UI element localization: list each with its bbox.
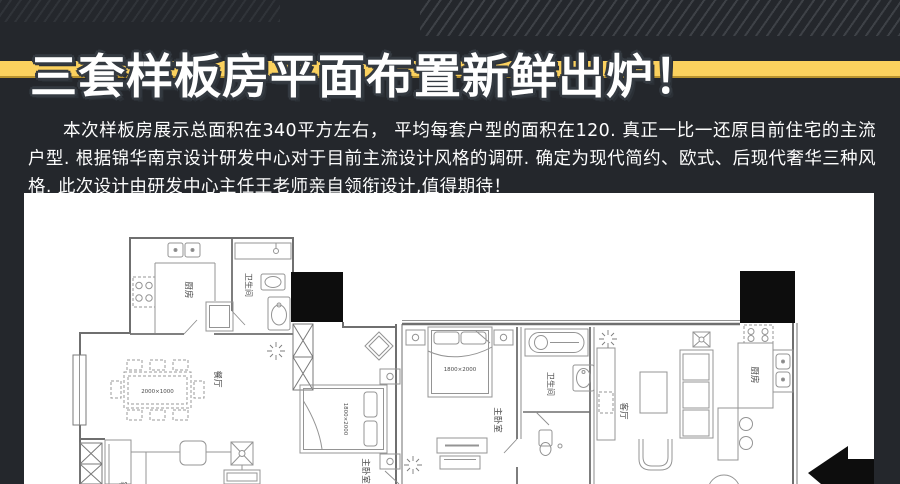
bar-counter [718,408,738,460]
armchair-icon [639,439,672,470]
tv-cabinet-icon-1 [224,470,260,484]
tv-cabinet-icon-3 [597,348,615,440]
article-page: { "colors": { "background": "#24272c", "… [0,0,900,484]
washbasin-icon [261,274,285,290]
ceiling-fan-icon-2 [693,332,710,347]
room-label-bathroom-2: 卫生间 [546,372,556,396]
bed-dimension-2: 1800×2000 [444,367,477,373]
corner-chair-icon [365,332,393,360]
structural-column-left [291,272,343,322]
kitchen-1 [133,243,233,333]
side-table-icon [180,441,206,465]
toilet-icon-2 [539,430,562,456]
room-label-kitchen-1: 厨房 [183,281,194,298]
fridge-icon [206,302,233,331]
floor-plan-drawing: 厨房 卫生间 2000×1000 餐厅 [24,193,874,484]
stove-burners [136,282,152,301]
elevator-shaft-icon [293,324,313,390]
stove-icon [133,277,155,307]
room-label-bathroom-1: 卫生间 [244,273,254,297]
tv-cabinet-icon-2 [437,438,487,453]
bed-icon-2 [428,327,492,397]
room-label-living-2: 客厅 [618,402,629,420]
bedroom-2 [406,327,513,469]
ceiling-lamp-icon-3 [404,456,422,474]
stove-burners-2 [748,329,768,342]
room-label-dining: 餐厅 [212,370,222,388]
bed-dimension-1: 1800×2000 [342,403,348,436]
kitchen-sink-icon-2 [773,350,793,392]
bathroom-1 [235,243,291,330]
dresser-icon [440,456,480,469]
room-label-master-1: 主卧室 [360,458,371,484]
header-hatch-texture-right [420,0,900,36]
intro-paragraph: 本次样板房展示总面积在340平方左右， 平均每套户型的面积在120. 真正一比一… [28,117,876,201]
coffee-table-icon [640,372,667,413]
floorplan-panel: 厨房 卫生间 2000×1000 餐厅 [24,193,874,484]
header-hatch-texture-left [0,0,280,22]
kitchen-sink-icon [168,243,200,257]
page-title: 三套样板房平面布置新鲜出炉！ [30,47,702,108]
bedroom-1 [300,332,400,469]
round-table-icon [708,475,740,484]
dining-table-dimension: 2000×1000 [141,389,174,395]
ceiling-fan-icon-1 [231,442,253,470]
sofa-icon [680,350,713,438]
kitchen-2 [718,325,793,460]
bar-stool-icon [740,437,753,450]
entrance-arrow-icon [808,446,874,484]
foyer-furniture [105,440,260,484]
toilet-icon [268,297,290,330]
room-label-kitchen-2: 厨房 [749,366,760,383]
shaft-x-icon-bottom-left [80,443,102,484]
ceiling-lamp-icon-1 [267,342,285,360]
structural-column-right [740,271,795,323]
wardrobe-icon [105,440,131,484]
bar-stool-icon [740,418,753,431]
window-icon [73,355,86,425]
room-label-master-2: 主卧室 [492,407,503,433]
ceiling-lamp-icon-2 [599,330,617,348]
bathtub-icon [525,329,588,356]
bathroom-2 [525,329,594,456]
